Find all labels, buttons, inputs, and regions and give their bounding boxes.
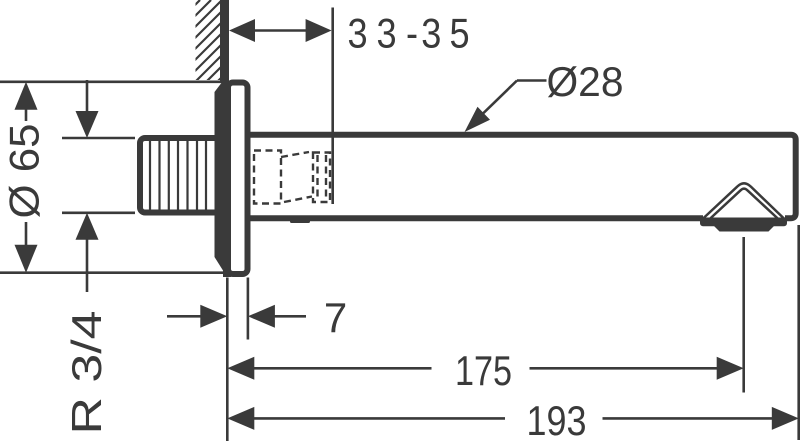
svg-text:5: 5 <box>449 11 469 57</box>
svg-text:3: 3 <box>347 11 367 57</box>
svg-text:193: 193 <box>527 397 587 444</box>
svg-text:-: - <box>406 11 418 57</box>
svg-text:3: 3 <box>421 11 441 57</box>
svg-text:Ø28: Ø28 <box>547 58 624 105</box>
svg-text:Ø 65: Ø 65 <box>1 124 48 219</box>
svg-text:3: 3 <box>376 11 396 57</box>
svg-text:175: 175 <box>455 347 512 394</box>
svg-text:7: 7 <box>324 294 347 341</box>
svg-text:R 3/4: R 3/4 <box>63 311 110 435</box>
